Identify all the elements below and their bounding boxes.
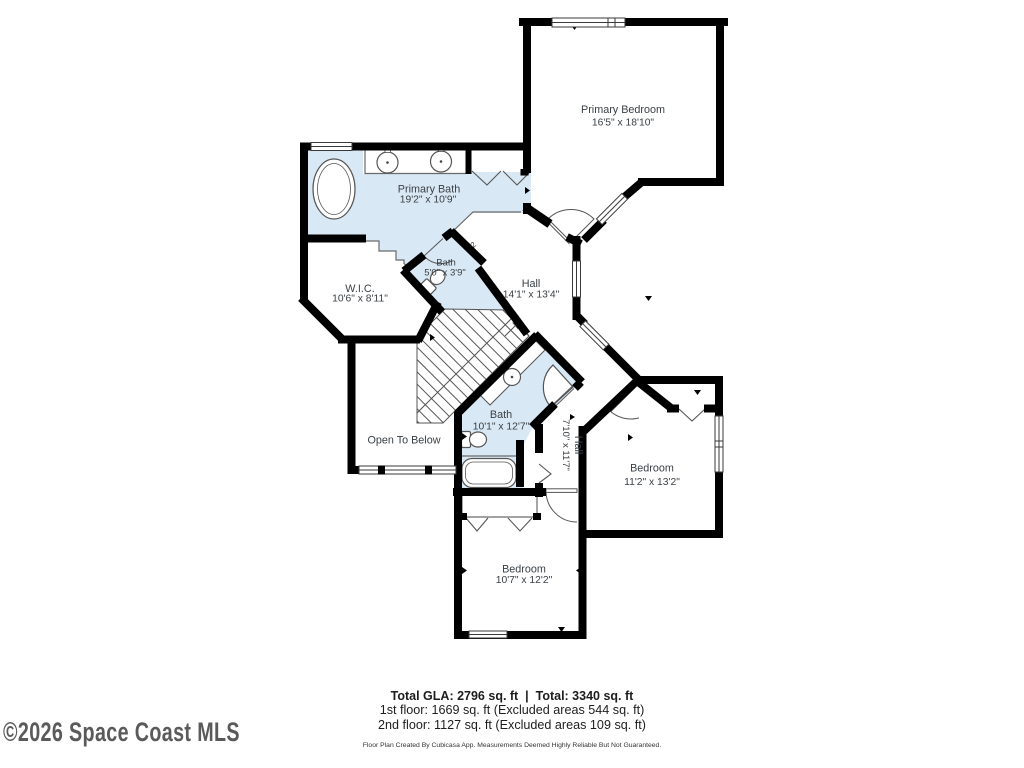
svg-text:16'5" x 18'10": 16'5" x 18'10" (592, 118, 655, 129)
svg-text:11'2" x 13'2": 11'2" x 13'2" (624, 477, 680, 488)
svg-text:Bedroom: Bedroom (630, 463, 674, 475)
svg-text:10'1" x 12'7": 10'1" x 12'7" (473, 422, 530, 433)
svg-text:Bedroom: Bedroom (502, 564, 546, 576)
svg-text:Primary Bedroom: Primary Bedroom (581, 104, 665, 116)
svg-text:10'7" x 12'2": 10'7" x 12'2" (496, 575, 553, 586)
svg-text:Bath: Bath (490, 409, 512, 421)
svg-text:19'2" x 10'9": 19'2" x 10'9" (400, 195, 457, 206)
svg-text:Open To Below: Open To Below (367, 435, 440, 447)
svg-text:5'0" x 3'9": 5'0" x 3'9" (424, 268, 466, 279)
svg-text:7'10" x 11'7": 7'10" x 11'7" (560, 419, 571, 471)
svg-text:Hall: Hall (522, 278, 541, 290)
svg-text:10'6" x 8'11": 10'6" x 8'11" (332, 294, 388, 305)
svg-text:14'1" x 13'4": 14'1" x 13'4" (503, 290, 560, 301)
svg-text:Hall: Hall (572, 436, 584, 455)
